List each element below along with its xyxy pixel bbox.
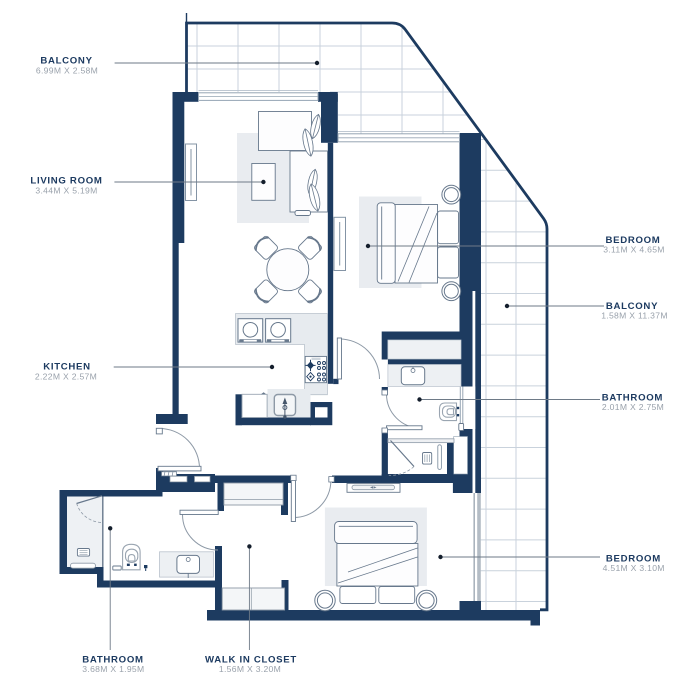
svg-text:6.99M X 2.58M: 6.99M X 2.58M (36, 66, 98, 76)
svg-text:1.56M X 3.20M: 1.56M X 3.20M (219, 664, 281, 673)
svg-text:3.68M X 1.95M: 3.68M X 1.95M (82, 664, 144, 673)
svg-text:3.11M X 4.65M: 3.11M X 4.65M (603, 245, 665, 255)
svg-text:3.44M X 5.19M: 3.44M X 5.19M (35, 186, 97, 196)
svg-text:4.51M X 3.10M: 4.51M X 3.10M (603, 563, 665, 573)
svg-text:1.58M X 11.37M: 1.58M X 11.37M (601, 311, 668, 321)
svg-text:2.01M X 2.75M: 2.01M X 2.75M (602, 402, 664, 412)
svg-text:2.22M X 2.57M: 2.22M X 2.57M (35, 372, 97, 382)
